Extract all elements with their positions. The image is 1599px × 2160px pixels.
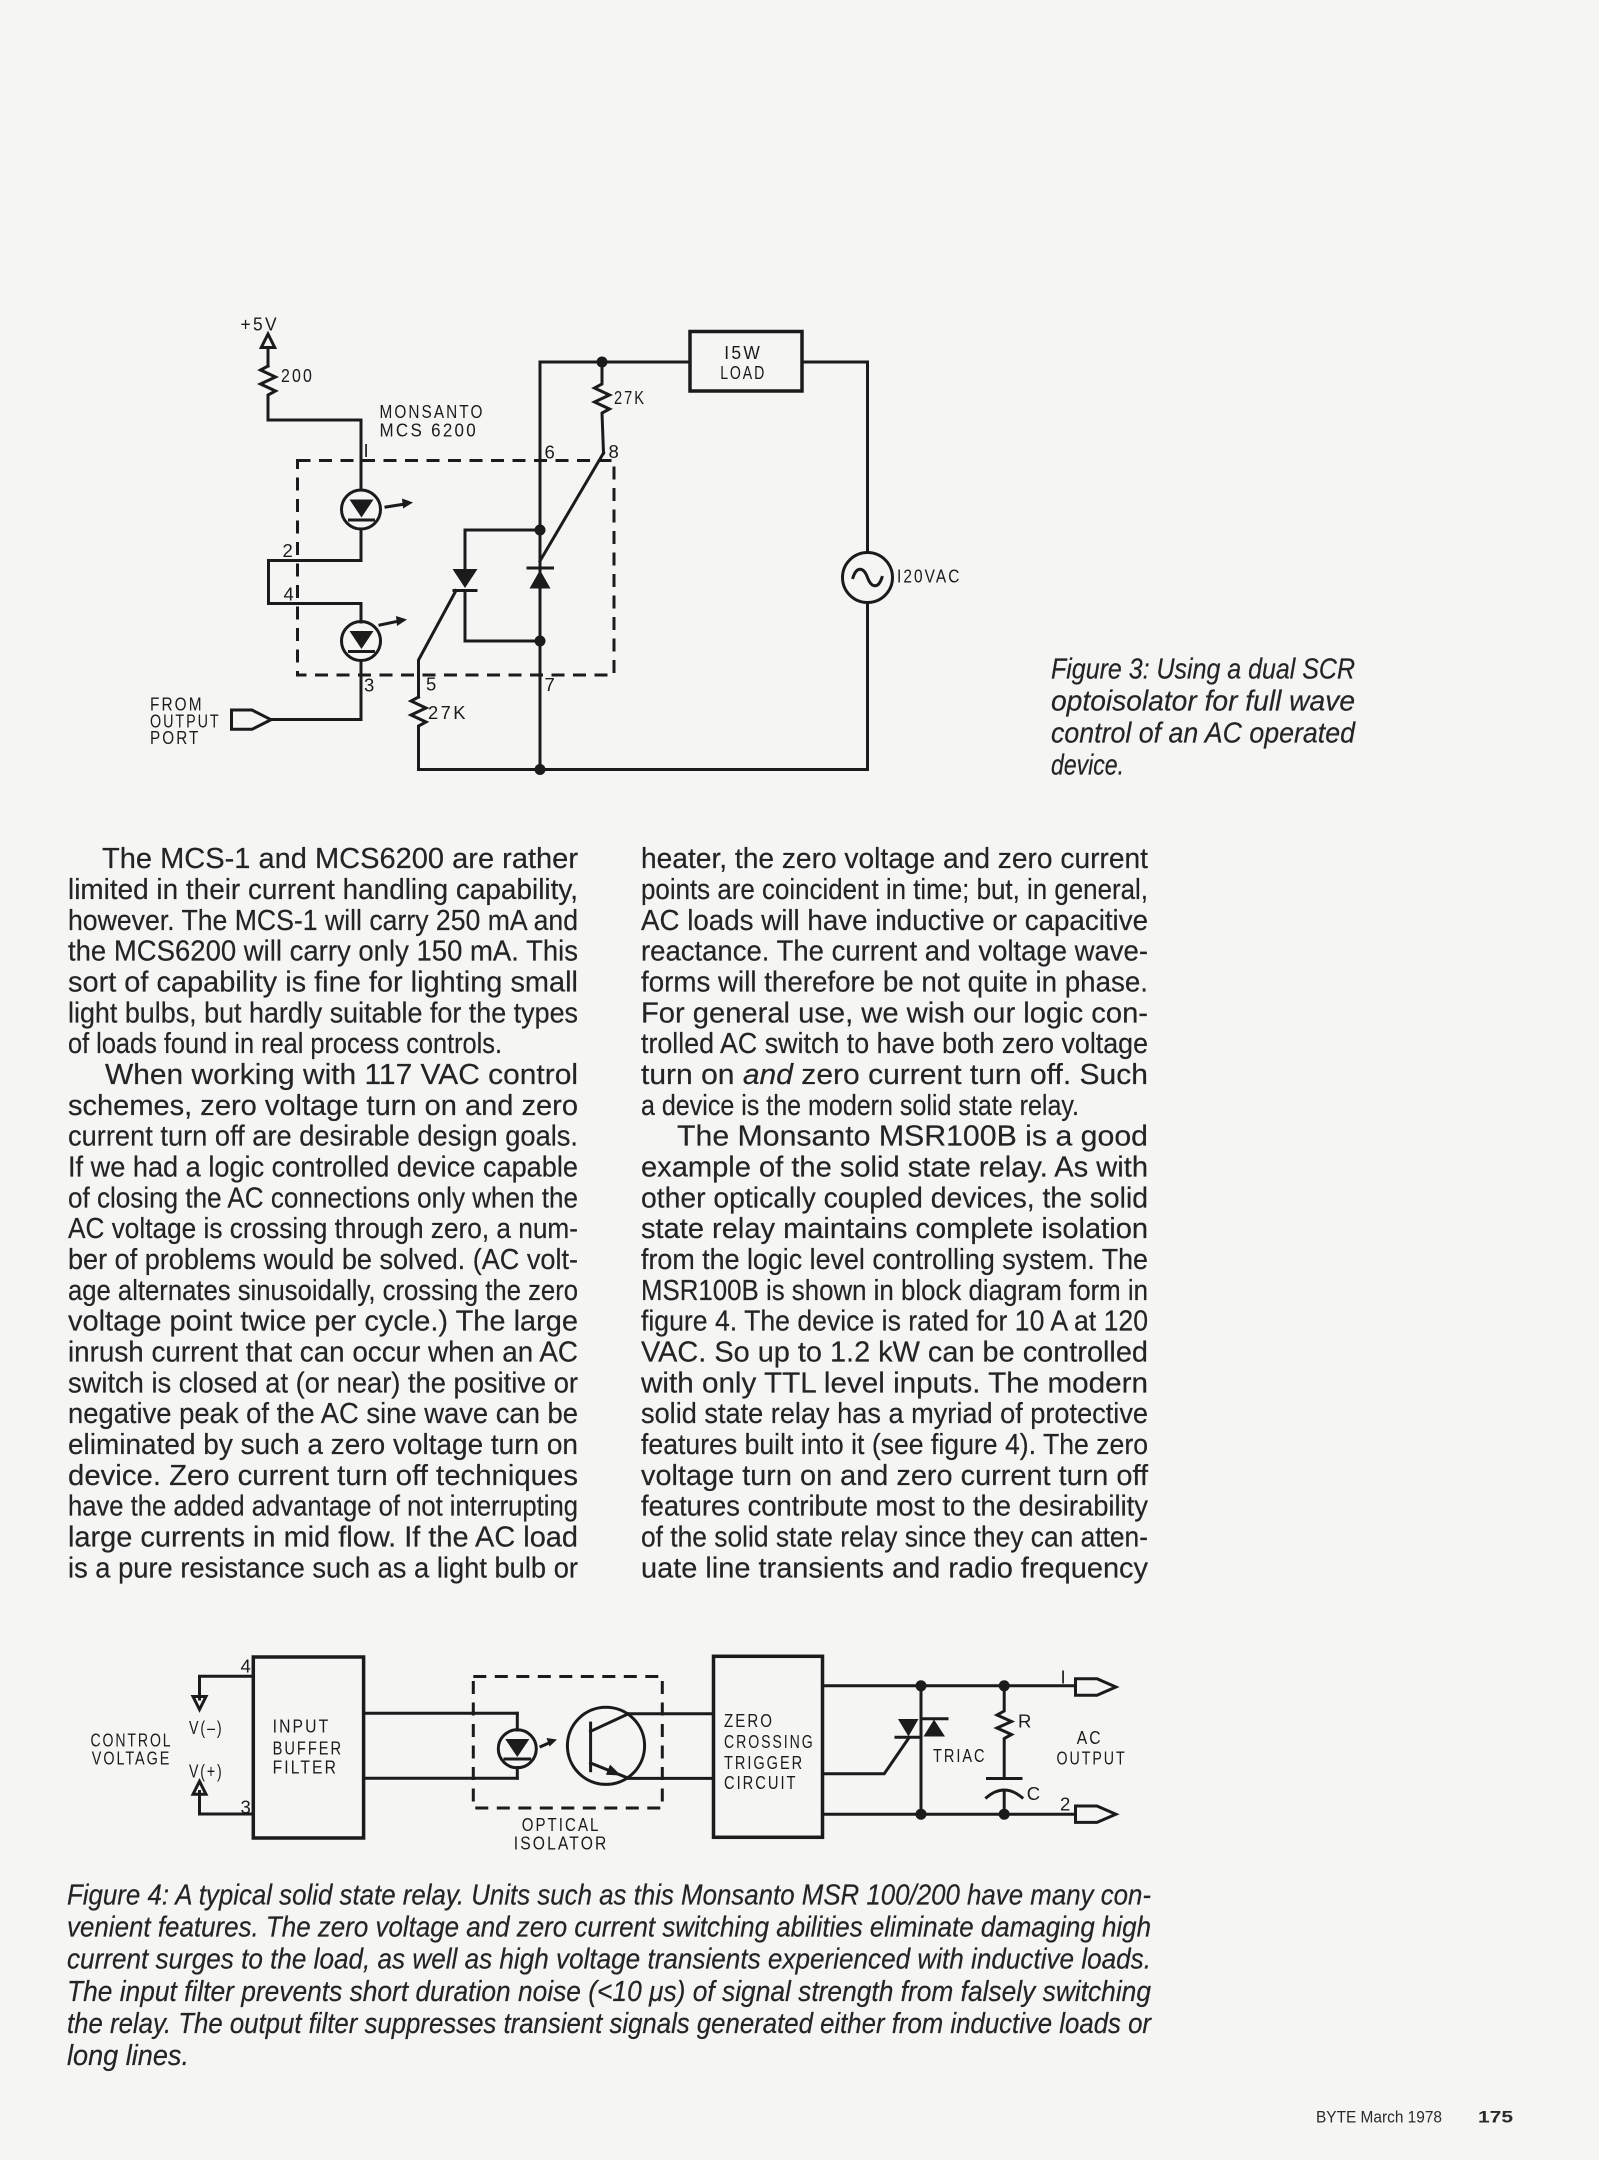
svg-text:I: I bbox=[1061, 1667, 1069, 1688]
svg-text:points are coincident in time;: points are coincident in time; but, in g… bbox=[641, 874, 1148, 906]
svg-text:3: 3 bbox=[364, 675, 377, 696]
svg-text:3: 3 bbox=[241, 1796, 254, 1817]
svg-text:2: 2 bbox=[283, 540, 296, 561]
svg-text:The Monsanto MSR100B is a good: The Monsanto MSR100B is a good bbox=[677, 1121, 1148, 1153]
svg-text:features built into it (see fi: features built into it (see figure 4). T… bbox=[641, 1429, 1148, 1461]
svg-text:MCS 6200: MCS 6200 bbox=[380, 420, 479, 441]
svg-text:the MCS6200 will carry only 15: the MCS6200 will carry only 150 mA. This bbox=[68, 936, 578, 968]
svg-text:If we had a logic controlled d: If we had a logic controlled device capa… bbox=[68, 1152, 578, 1184]
svg-text:solid state relay has a myriad: solid state relay has a myriad of protec… bbox=[641, 1398, 1148, 1430]
svg-text:27K: 27K bbox=[614, 387, 646, 408]
svg-text:the relay. The output filter s: the relay. The output filter suppresses … bbox=[67, 2008, 1152, 2040]
svg-text:large currents in mid flow. If: large currents in mid flow. If the AC lo… bbox=[68, 1522, 578, 1554]
svg-text:example of the solid state rel: example of the solid state relay. As wit… bbox=[641, 1152, 1148, 1184]
svg-text:For general use, we wish our l: For general use, we wish our logic con- bbox=[641, 997, 1148, 1029]
svg-text:R: R bbox=[1018, 1711, 1034, 1732]
svg-text:voltage point twice per cycle.: voltage point twice per cycle.) The larg… bbox=[68, 1306, 578, 1338]
svg-text:negative peak of the AC sine w: negative peak of the AC sine wave can be bbox=[68, 1398, 578, 1430]
svg-text:of closing the AC connections: of closing the AC connections only when … bbox=[68, 1182, 578, 1214]
svg-text:state relay maintains complete: state relay maintains complete isolation bbox=[641, 1213, 1148, 1245]
svg-text:sort of capability is fine for: sort of capability is fine for lighting … bbox=[68, 967, 578, 999]
svg-text:current turn off are desirable: current turn off are desirable design go… bbox=[68, 1121, 578, 1153]
svg-text:AC loads will have inductive o: AC loads will have inductive or capaciti… bbox=[641, 905, 1148, 937]
svg-text:voltage turn on and zero curre: voltage turn on and zero current turn of… bbox=[641, 1460, 1149, 1492]
svg-text:reactance. The current and vol: reactance. The current and voltage wave- bbox=[641, 936, 1148, 968]
svg-text:27K: 27K bbox=[428, 702, 468, 723]
svg-text:4: 4 bbox=[284, 584, 297, 605]
svg-text:CROSSING: CROSSING bbox=[724, 1731, 815, 1752]
svg-text:7: 7 bbox=[545, 674, 558, 695]
svg-text:BUFFER: BUFFER bbox=[273, 1737, 344, 1758]
svg-text:MSR100B is shown in block diag: MSR100B is shown in block diagram form i… bbox=[641, 1275, 1148, 1307]
svg-text:uate line transients and radio: uate line transients and radio frequency bbox=[641, 1552, 1148, 1584]
svg-text:CIRCUIT: CIRCUIT bbox=[724, 1772, 798, 1793]
svg-text:I5W: I5W bbox=[724, 342, 762, 363]
svg-text:features contribute most to th: features contribute most to the desirabi… bbox=[641, 1491, 1148, 1523]
svg-text:current surges to the load, as: current surges to the load, as well as h… bbox=[67, 1944, 1151, 1976]
svg-text:switch is closed at (or near): switch is closed at (or near) the positi… bbox=[68, 1367, 578, 1399]
svg-text:VAC. So up to 1.2 kW can be co: VAC. So up to 1.2 kW can be controlled bbox=[641, 1337, 1148, 1369]
svg-text:however. The MCS-1 will carry: however. The MCS-1 will carry 250 mA and bbox=[68, 905, 578, 937]
svg-text:FILTER: FILTER bbox=[273, 1757, 338, 1778]
svg-text:control of an AC operated: control of an AC operated bbox=[1051, 718, 1356, 750]
svg-text:other optically coupled device: other optically coupled devices, the sol… bbox=[641, 1182, 1148, 1214]
svg-text:a device is the modern solid s: a device is the modern solid state relay… bbox=[641, 1090, 1079, 1122]
svg-text:LOAD: LOAD bbox=[720, 362, 766, 383]
svg-text:175: 175 bbox=[1478, 2108, 1513, 2127]
svg-text:optoisolator for full wave: optoisolator for full wave bbox=[1051, 686, 1355, 718]
svg-text:200: 200 bbox=[281, 365, 314, 386]
svg-text:venient features. The zero vol: venient features. The zero voltage and z… bbox=[67, 1912, 1151, 1944]
svg-text:INPUT: INPUT bbox=[273, 1716, 331, 1737]
svg-text:+5V: +5V bbox=[241, 314, 280, 335]
svg-text:Figure 3: Using a dual SCR: Figure 3: Using a dual SCR bbox=[1051, 654, 1355, 686]
svg-text:AC: AC bbox=[1077, 1727, 1103, 1748]
svg-text:OUTPUT: OUTPUT bbox=[1057, 1747, 1127, 1768]
svg-text:of loads found in real process: of loads found in real process controls. bbox=[68, 1028, 502, 1060]
svg-text:4: 4 bbox=[241, 1655, 254, 1676]
svg-text:forms will therefore be not qu: forms will therefore be not quite in pha… bbox=[641, 967, 1148, 999]
svg-text:TRIGGER: TRIGGER bbox=[724, 1752, 804, 1773]
svg-text:have the added advantage of no: have the added advantage of not interrup… bbox=[68, 1491, 578, 1523]
svg-text:turn on and zero current turn: turn on and zero current turn off. Such bbox=[641, 1059, 1148, 1091]
svg-text:with only TTL level inputs. Th: with only TTL level inputs. The modern bbox=[640, 1367, 1148, 1399]
svg-text:device. Zero current turn off: device. Zero current turn off techniques bbox=[68, 1460, 578, 1492]
svg-text:BYTE March 1978: BYTE March 1978 bbox=[1316, 2108, 1442, 2127]
svg-text:PORT: PORT bbox=[150, 727, 200, 748]
svg-text:5: 5 bbox=[426, 674, 439, 695]
svg-text:heater, the zero voltage and z: heater, the zero voltage and zero curren… bbox=[641, 843, 1148, 875]
svg-text:long lines.: long lines. bbox=[67, 2040, 189, 2072]
svg-text:TRIAC: TRIAC bbox=[933, 1745, 987, 1766]
svg-text:age alternates sinusoidally, c: age alternates sinusoidally, crossing th… bbox=[68, 1275, 578, 1307]
svg-text:I20VAC: I20VAC bbox=[897, 566, 962, 587]
svg-text:V(+): V(+) bbox=[189, 1760, 224, 1781]
svg-text:VOLTAGE: VOLTAGE bbox=[92, 1748, 172, 1769]
svg-text:limited in their current handl: limited in their current handling capabi… bbox=[68, 874, 578, 906]
svg-text:of the solid state relay since: of the solid state relay since they can … bbox=[641, 1522, 1148, 1554]
svg-text:6: 6 bbox=[545, 442, 558, 463]
svg-text:I: I bbox=[364, 440, 372, 461]
svg-text:V(–): V(–) bbox=[189, 1717, 224, 1738]
svg-text:is a pure resistance such as a: is a pure resistance such as a light bul… bbox=[68, 1552, 578, 1584]
svg-text:trolled AC switch to have both: trolled AC switch to have both zero volt… bbox=[641, 1028, 1148, 1060]
svg-text:C: C bbox=[1027, 1783, 1043, 1804]
svg-text:figure 4. The device is rated: figure 4. The device is rated for 10 A a… bbox=[641, 1306, 1148, 1338]
svg-text:The MCS-1 and MCS6200 are rath: The MCS-1 and MCS6200 are rather bbox=[102, 843, 578, 875]
svg-text:ISOLATOR: ISOLATOR bbox=[514, 1832, 609, 1853]
svg-text:inrush current that can occur: inrush current that can occur when an AC bbox=[68, 1337, 578, 1369]
svg-text:ZERO: ZERO bbox=[724, 1710, 774, 1731]
svg-text:eliminated by such a zero volt: eliminated by such a zero voltage turn o… bbox=[68, 1429, 578, 1461]
svg-text:light bulbs, but hardly suitab: light bulbs, but hardly suitable for the… bbox=[68, 997, 578, 1029]
svg-text:Figure 4: A typical solid stat: Figure 4: A typical solid state relay. U… bbox=[67, 1880, 1151, 1912]
svg-text:from the logic level controlli: from the logic level controlling system.… bbox=[641, 1244, 1148, 1276]
svg-text:schemes, zero voltage turn on: schemes, zero voltage turn on and zero bbox=[68, 1090, 578, 1122]
svg-text:device.: device. bbox=[1051, 750, 1124, 782]
svg-text:8: 8 bbox=[609, 441, 622, 462]
svg-text:AC voltage is crossing through: AC voltage is crossing through zero, a n… bbox=[68, 1213, 578, 1245]
svg-text:ber of problems would be solve: ber of problems would be solved. (AC vol… bbox=[68, 1244, 578, 1276]
svg-text:The input filter prevents shor: The input filter prevents short duration… bbox=[67, 1976, 1151, 2008]
svg-text:2: 2 bbox=[1060, 1794, 1073, 1815]
svg-text:When working with 117 VAC cont: When working with 117 VAC control bbox=[105, 1059, 578, 1091]
